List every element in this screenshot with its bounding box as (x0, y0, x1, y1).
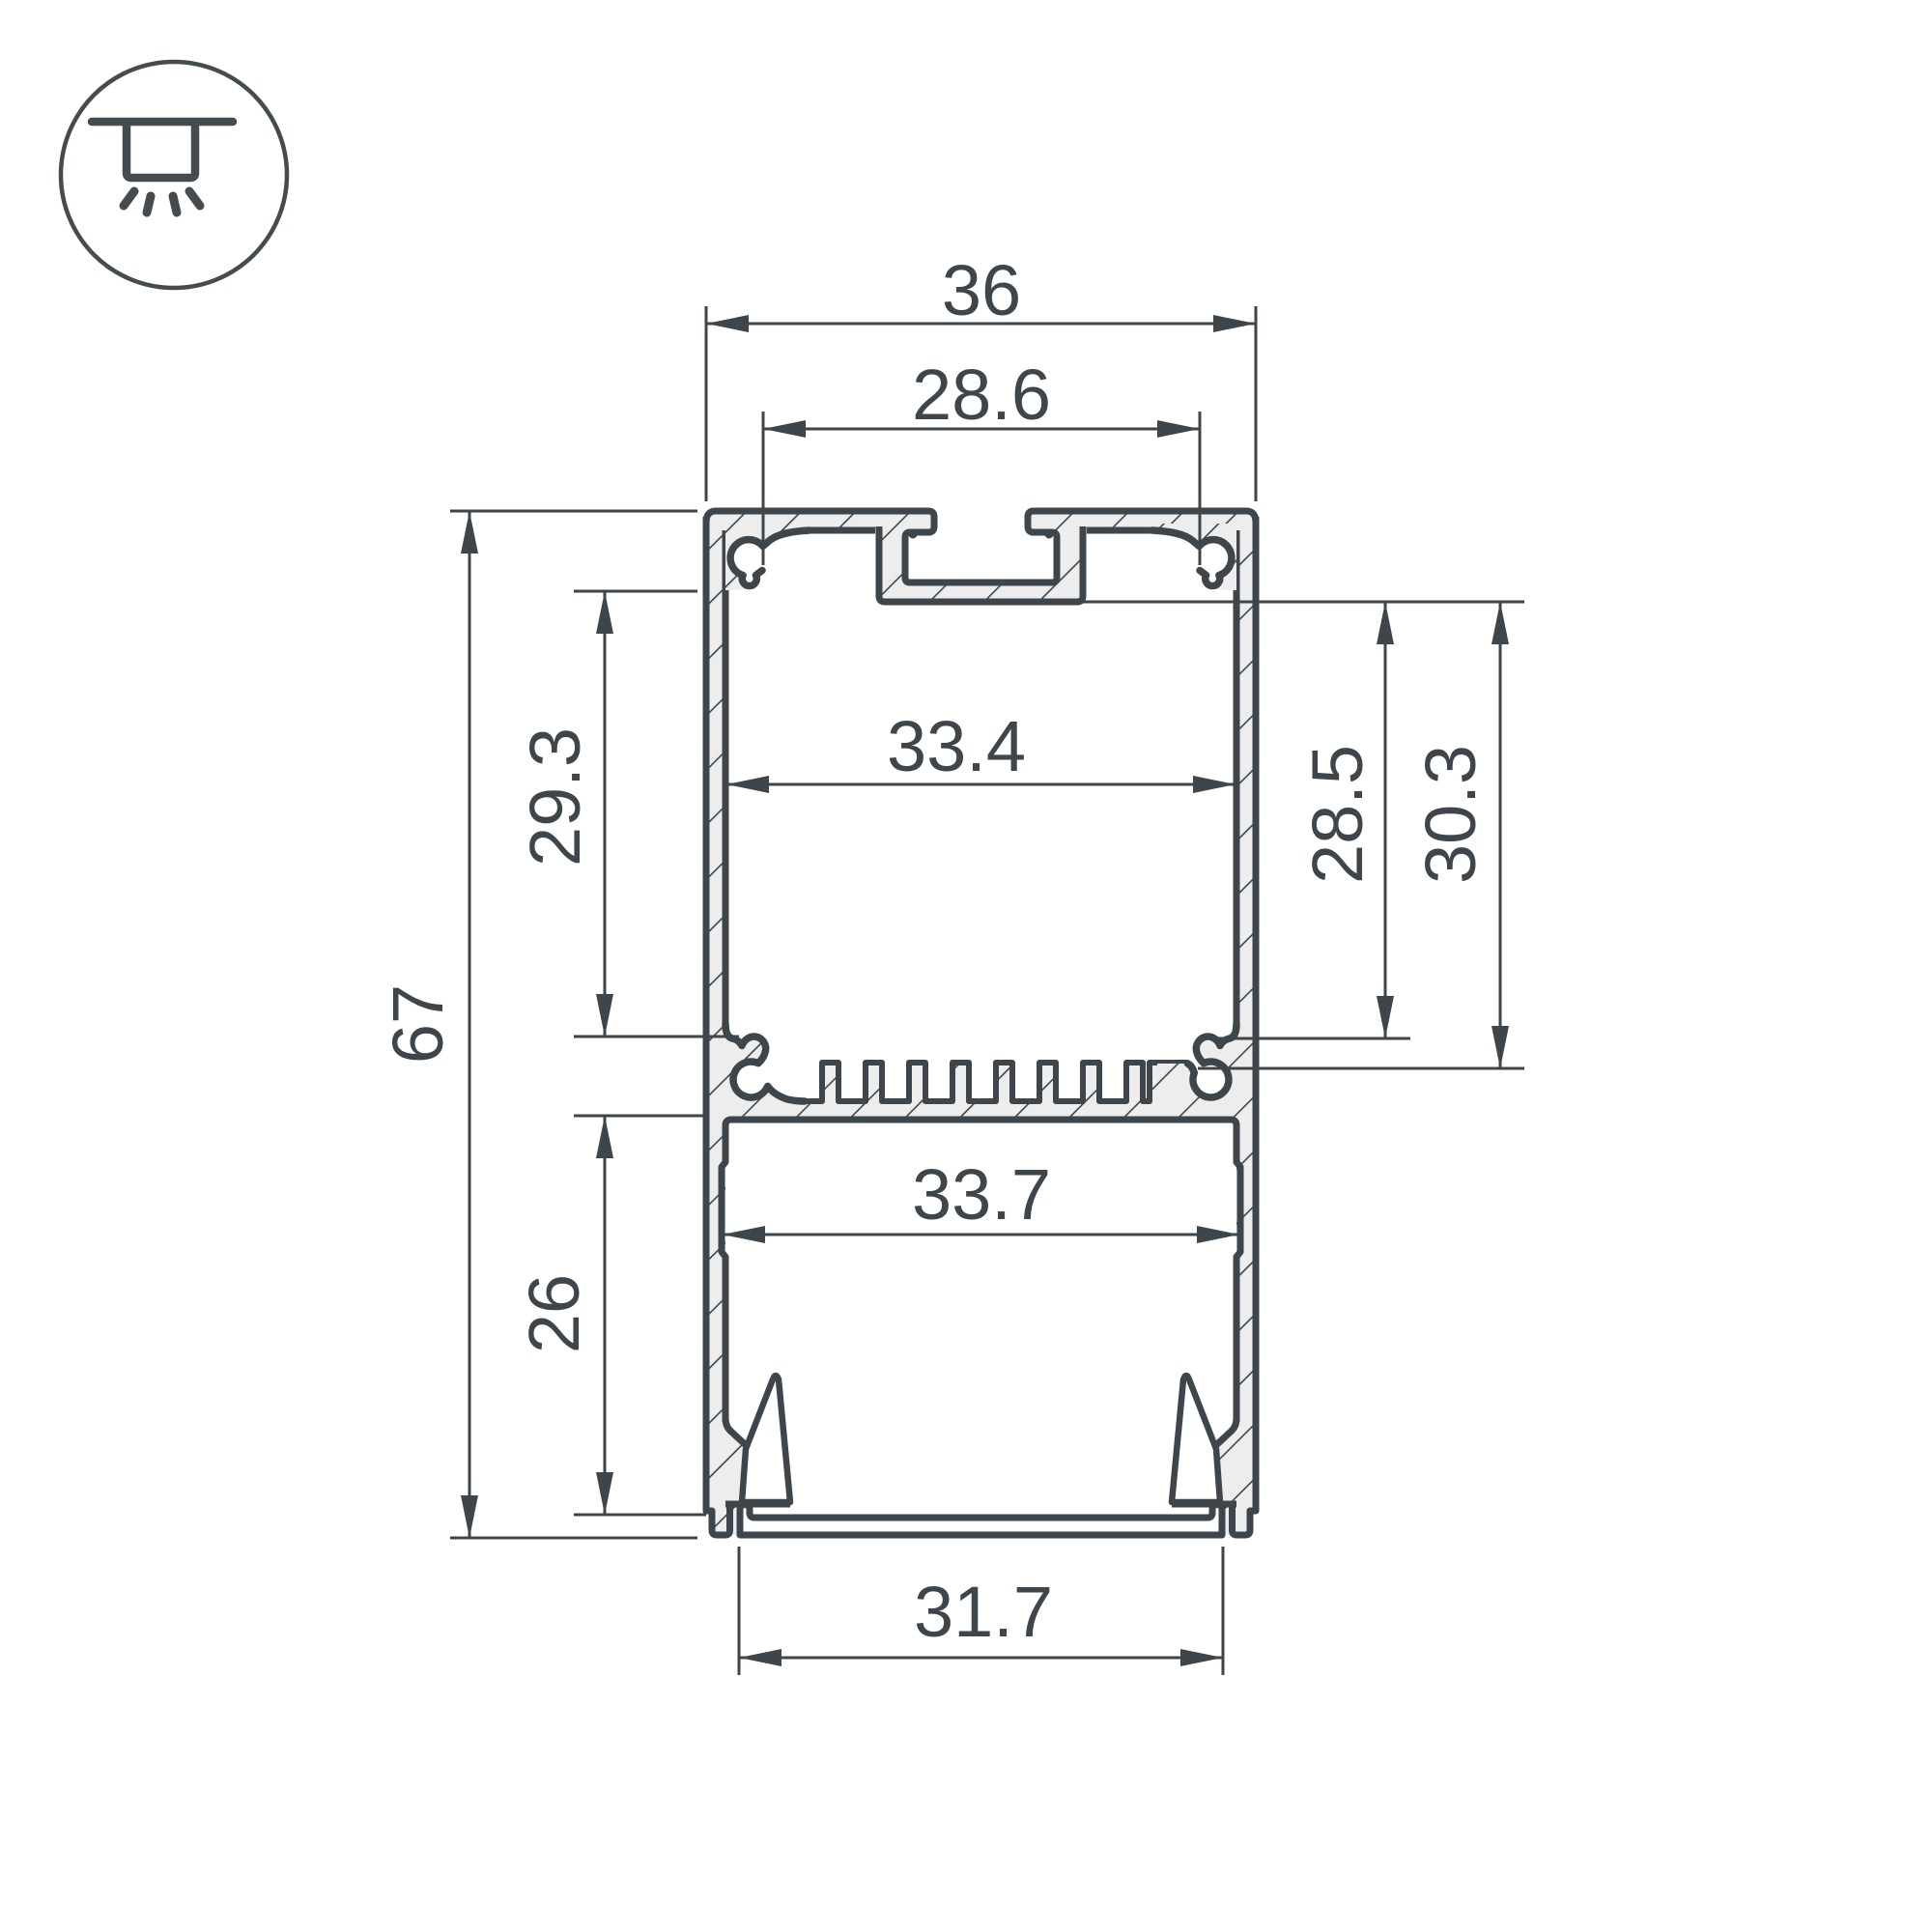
svg-text:31.7: 31.7 (914, 1572, 1053, 1652)
svg-text:26: 26 (514, 1274, 594, 1353)
svg-text:30.3: 30.3 (1410, 745, 1491, 884)
svg-text:67: 67 (378, 984, 458, 1064)
svg-text:33.4: 33.4 (887, 706, 1026, 786)
svg-text:28.6: 28.6 (912, 355, 1051, 435)
svg-text:33.7: 33.7 (912, 1154, 1051, 1235)
svg-text:28.5: 28.5 (1297, 745, 1378, 884)
svg-text:36: 36 (942, 250, 1021, 330)
svg-text:29.3: 29.3 (515, 727, 595, 867)
